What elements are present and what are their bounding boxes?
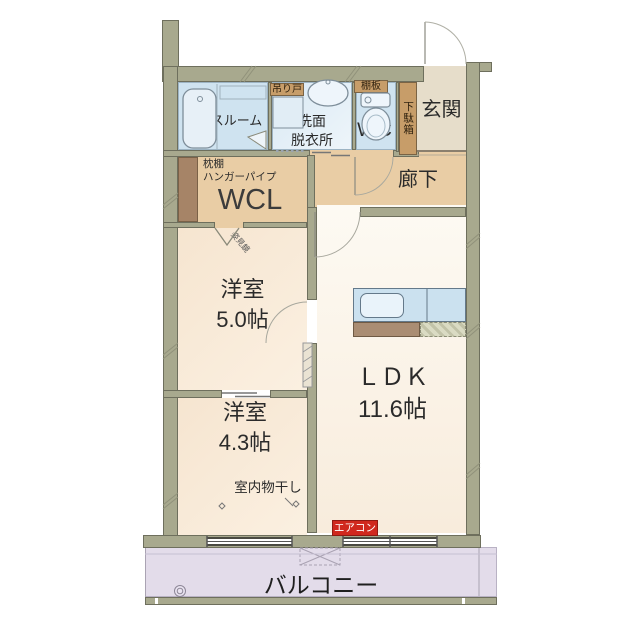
left-wall-joints xyxy=(163,193,178,509)
bedroom1-door-leaf xyxy=(303,343,312,387)
floor-plan: 下駄箱 吊り戸 棚板 バスルーム 洗面 脱衣所 WC 玄関 廊下 枕棚 ハンガー… xyxy=(0,0,640,640)
bathroom-counter xyxy=(220,86,266,99)
bedroom1-door-arc xyxy=(266,302,307,343)
closet-folding-door xyxy=(215,228,239,245)
right-wall-joints xyxy=(466,233,480,479)
plan-linework xyxy=(0,0,640,640)
bathtub xyxy=(183,89,216,148)
top-wall-joints xyxy=(240,66,361,82)
entrance-door-arc xyxy=(425,22,466,64)
toilet-bowl xyxy=(362,108,390,140)
drying-pointer xyxy=(285,498,293,506)
evacuation-hatch-x xyxy=(300,548,340,565)
wc-door-arc xyxy=(355,157,393,195)
balcony-drain xyxy=(175,586,186,597)
hanging-cupboard xyxy=(273,97,303,128)
drying-hooks xyxy=(219,501,299,509)
bathroom-door xyxy=(248,131,266,149)
ldk-door-arc xyxy=(315,212,360,257)
